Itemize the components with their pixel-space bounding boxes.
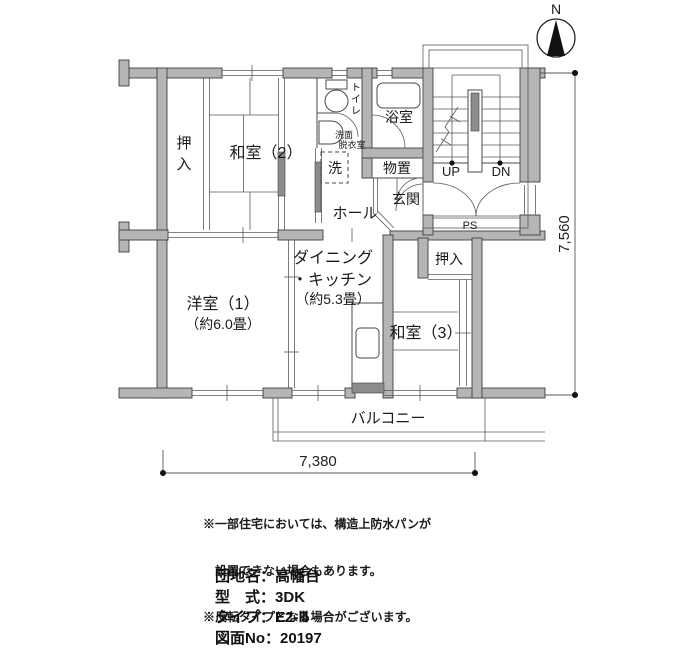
balcony-door (352, 383, 384, 393)
label-dk-3: （約5.3畳） (295, 291, 370, 307)
info-row-estate-name: 団地名：高幡台 (215, 567, 322, 588)
label-storage: 物置 (383, 160, 411, 176)
label-oshiire-north: 押入 (176, 135, 191, 173)
dimension-horizontal: 7,380 (160, 450, 478, 476)
info-label: 団地名 (215, 568, 260, 585)
property-info-block: 団地名：高幡台 型 式：3DK タイプ：E2-Ⅲ 図面No：20197 (215, 567, 322, 649)
info-row-type: タイプ：E2-Ⅲ (215, 608, 322, 629)
label-toilet: トイレ (351, 83, 361, 117)
info-separator: ： (260, 568, 275, 585)
info-label: 型 式 (215, 589, 260, 606)
info-value: 3DK (275, 589, 305, 606)
label-laundry: 洗 (328, 160, 342, 176)
info-value: 20197 (280, 630, 322, 647)
info-row-layout-type: 型 式：3DK (215, 588, 322, 609)
info-label: 図面No (215, 630, 265, 647)
kitchen-sink-icon (352, 303, 384, 393)
note-line: ※一部住宅においては、構造上防水パンが (203, 517, 503, 533)
toilet-icon (325, 80, 348, 112)
label-hall: ホール (332, 205, 377, 222)
label-western-room-2: （約6.0畳） (185, 316, 260, 332)
info-separator: ： (260, 609, 275, 626)
label-dk-1: ダイニング (293, 249, 373, 267)
floor-plan-page: N 7,560 7,380 押入 和室（2） トイレ 洗面 脱衣室 洗 浴室 物… (0, 0, 700, 650)
label-up: UP (442, 164, 460, 179)
info-separator: ： (265, 630, 280, 647)
dimension-vertical: 7,560 (540, 70, 578, 398)
stairwell-doors (433, 183, 520, 216)
label-oshiire-east: 押入 (435, 251, 463, 267)
north-arrow-icon: N (537, 1, 575, 57)
label-balcony: バルコニー (351, 410, 426, 427)
dimension-width-label: 7,380 (299, 453, 337, 470)
label-washroom-1: 洗面 (335, 129, 353, 140)
info-separator: ： (260, 589, 275, 606)
label-washroom-2: 脱衣室 (338, 139, 365, 150)
label-washitsu-3: 和室（3） (390, 324, 463, 342)
dimension-height-label: 7,560 (556, 215, 573, 253)
stairs-icon (433, 75, 520, 172)
info-value: 高幡台 (275, 568, 320, 585)
bathtub-icon (377, 83, 420, 108)
label-dn: DN (492, 164, 511, 179)
room-labels: 押入 和室（2） トイレ 洗面 脱衣室 洗 浴室 物置 玄関 ホール PS UP… (176, 83, 510, 427)
info-row-drawing-no: 図面No：20197 (215, 629, 322, 650)
label-dk-2: ・キッチン (292, 272, 372, 289)
stairwell (423, 45, 528, 228)
label-ps: PS (463, 220, 478, 232)
label-bath: 浴室 (385, 109, 413, 125)
info-label: タイプ (215, 609, 260, 626)
label-washitsu-2: 和室（2） (230, 144, 303, 162)
north-label: N (551, 1, 561, 17)
label-entrance: 玄関 (392, 191, 420, 207)
label-western-room-1: 洋室（1） (187, 295, 260, 313)
info-value: E2-Ⅲ (275, 609, 309, 626)
